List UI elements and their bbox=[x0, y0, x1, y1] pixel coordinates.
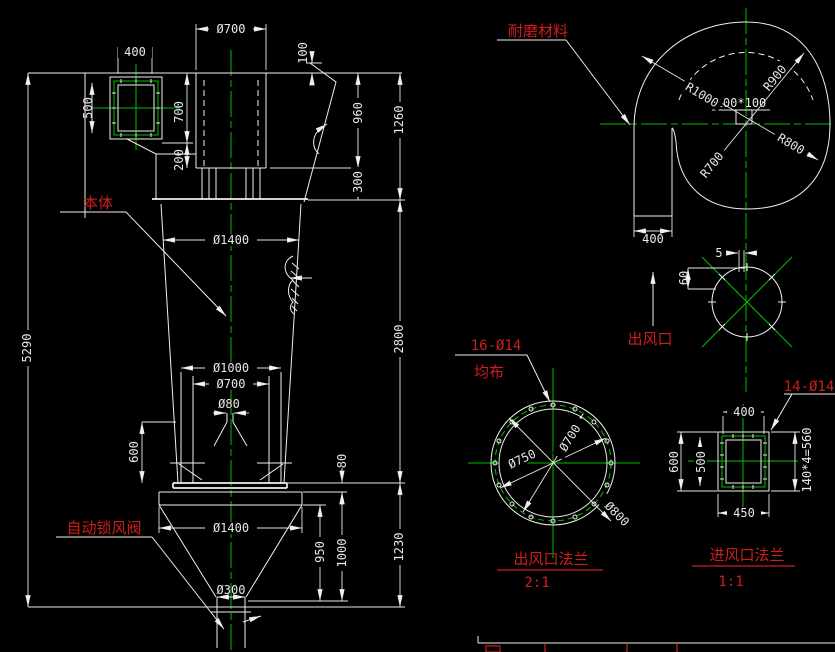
dim-outlet-pipe-dia: Ø700 bbox=[217, 22, 246, 36]
dim-inlet-drop: 700 bbox=[172, 101, 186, 123]
dim-outer-width: 450 bbox=[733, 506, 755, 520]
holes-note-2: 均布 bbox=[474, 363, 504, 381]
valve-label: 自动锁风阀 bbox=[66, 519, 141, 537]
dim-discharge-dia: Ø300 bbox=[217, 583, 246, 597]
volute-profile bbox=[304, 63, 336, 202]
dim-bolt-spacing: 140*4=560 bbox=[800, 427, 814, 492]
dim-outer-height: 600 bbox=[667, 451, 681, 473]
dim-pipe-height: 960 bbox=[351, 102, 365, 124]
main-view-labels: 本体 自动锁风阀 bbox=[56, 194, 226, 629]
dim-depth: 60 bbox=[677, 271, 691, 285]
dim-inlet-box-width: 400 bbox=[124, 45, 146, 59]
volute-scroll-outline bbox=[634, 22, 830, 209]
dim-r1: R1000 bbox=[683, 80, 721, 111]
dim-hopper-depth: 950 bbox=[313, 541, 327, 563]
dim-stand-height: 600 bbox=[127, 441, 141, 463]
outlet-flange-scale: 2:1 bbox=[524, 575, 549, 591]
inlet-flange-detail: 400 450 600 500 140*4=560 14-Ø14 进风口法兰 1… bbox=[667, 379, 835, 590]
dim-head-height: 1260 bbox=[392, 106, 406, 135]
dim-duct-width: 400 bbox=[642, 232, 664, 246]
dim-base-height: 1230 bbox=[392, 533, 406, 562]
dim-skirt-height: 200 bbox=[172, 149, 186, 171]
dim-vortex-dia: Ø80 bbox=[218, 397, 240, 411]
dim-hopper-height: 1000 bbox=[335, 539, 349, 568]
outlet-flange-detail: Ø750 Ø700 Ø800 16-Ø14 均布 出风口法兰 2:1 bbox=[455, 338, 638, 591]
dim-bore-width: 400 bbox=[733, 405, 755, 419]
dim-inner-pipe-dia: Ø700 bbox=[217, 377, 246, 391]
material-label: 耐磨材料 bbox=[508, 22, 568, 40]
body-label: 本体 bbox=[83, 194, 113, 212]
inlet-holes-note: 14-Ø14 bbox=[784, 379, 835, 395]
dim-body-dia: Ø1400 bbox=[213, 233, 249, 247]
throat-square bbox=[736, 110, 752, 124]
volute-top-view: 100*100 R1000 R900 R800 R700 400 耐磨材料 bbox=[497, 22, 830, 246]
title-block-edge bbox=[478, 636, 835, 652]
cyclone-separator-drawing: 400 Ø700 500 100 700 200 960 300 1260 Ø1… bbox=[0, 0, 835, 652]
discharge-direction-arrow bbox=[243, 616, 261, 622]
outlet-label: 出风口 bbox=[627, 330, 672, 348]
holes-note: 16-Ø14 bbox=[471, 338, 522, 354]
outlet-flange-title: 出风口法兰 bbox=[513, 550, 588, 568]
dim-top-offset: 100 bbox=[296, 42, 310, 64]
inlet-flange-title: 进风口法兰 bbox=[709, 546, 784, 564]
cad-drawing-canvas: 400 Ø700 500 100 700 200 960 300 1260 Ø1… bbox=[0, 0, 835, 652]
dim-bolt-circle-dia: Ø750 bbox=[506, 447, 538, 472]
dim-lip: 5 bbox=[715, 246, 722, 260]
dim-r3: R800 bbox=[775, 131, 807, 158]
dim-total-height: 5290 bbox=[20, 334, 34, 363]
dim-shell-dia: Ø1000 bbox=[213, 361, 249, 375]
support-plate bbox=[173, 483, 287, 488]
dim-inlet-box-height: 500 bbox=[81, 97, 95, 119]
volute-inlet-duct bbox=[634, 128, 672, 216]
dim-cone-height: 2800 bbox=[392, 325, 406, 354]
dim-bore-height: 500 bbox=[694, 451, 708, 473]
dim-ring-height: 300 bbox=[351, 171, 365, 193]
lining-cutaway bbox=[285, 256, 312, 314]
dim-plate-gap: 80 bbox=[335, 454, 349, 468]
dim-hopper-dia: Ø1400 bbox=[213, 521, 249, 535]
inlet-flange-scale: 1:1 bbox=[718, 574, 743, 590]
